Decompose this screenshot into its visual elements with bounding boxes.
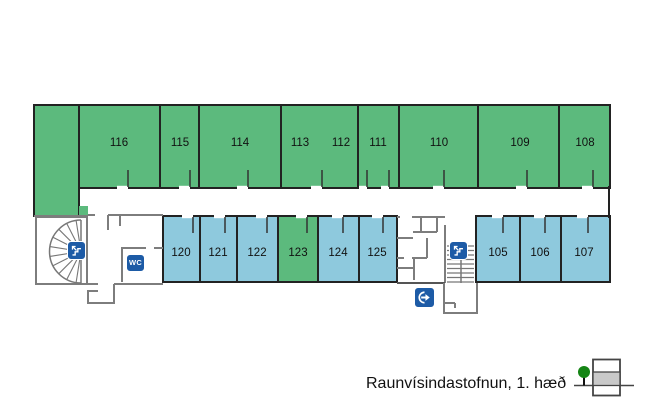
room-106-label: 106: [520, 247, 560, 260]
room-110-label: 110: [419, 137, 459, 150]
room-123-label: 123: [278, 247, 318, 260]
left-wing-room: [34, 105, 79, 216]
room-116-label: 116: [99, 137, 139, 150]
stairs-icon: [67, 241, 86, 260]
room-111-label: 111: [358, 137, 398, 150]
exit-stairwell: [444, 283, 477, 313]
room-120-label: 120: [161, 247, 201, 260]
room-114-label: 114: [220, 137, 260, 150]
floorplan-drawing: [0, 0, 650, 420]
exit-arrow-icon: [414, 287, 435, 308]
entrance-outline: [88, 284, 114, 303]
room-124-label: 124: [318, 247, 358, 260]
room-125-label: 125: [357, 247, 397, 260]
room-121-label: 121: [198, 247, 238, 260]
floorplan-canvas: 116 115 114 113 112 111 110 109 108 120 …: [0, 0, 650, 420]
room-107-label: 107: [564, 247, 604, 260]
room-109-label: 109: [500, 137, 540, 150]
room-122-label: 122: [237, 247, 277, 260]
room-108-label: 108: [565, 137, 605, 150]
door-openings: [117, 186, 593, 218]
stairs-icon: [449, 241, 468, 260]
room-113-label: 113: [280, 137, 320, 150]
floor-level-legend: [574, 360, 634, 396]
service-rooms: [397, 217, 445, 283]
room-105-label: 105: [478, 247, 518, 260]
wc-icon-label: WC: [129, 259, 142, 267]
room-115-label: 115: [160, 137, 200, 150]
highlighted-floor-band: [593, 372, 620, 386]
left-wing-strip: [79, 206, 88, 216]
tree-icon: [578, 366, 590, 378]
wc-icon: WC: [126, 254, 145, 272]
floorplan-caption: Raunvísindastofnun, 1. hæð: [366, 375, 566, 393]
room-112-label: 112: [321, 137, 361, 150]
